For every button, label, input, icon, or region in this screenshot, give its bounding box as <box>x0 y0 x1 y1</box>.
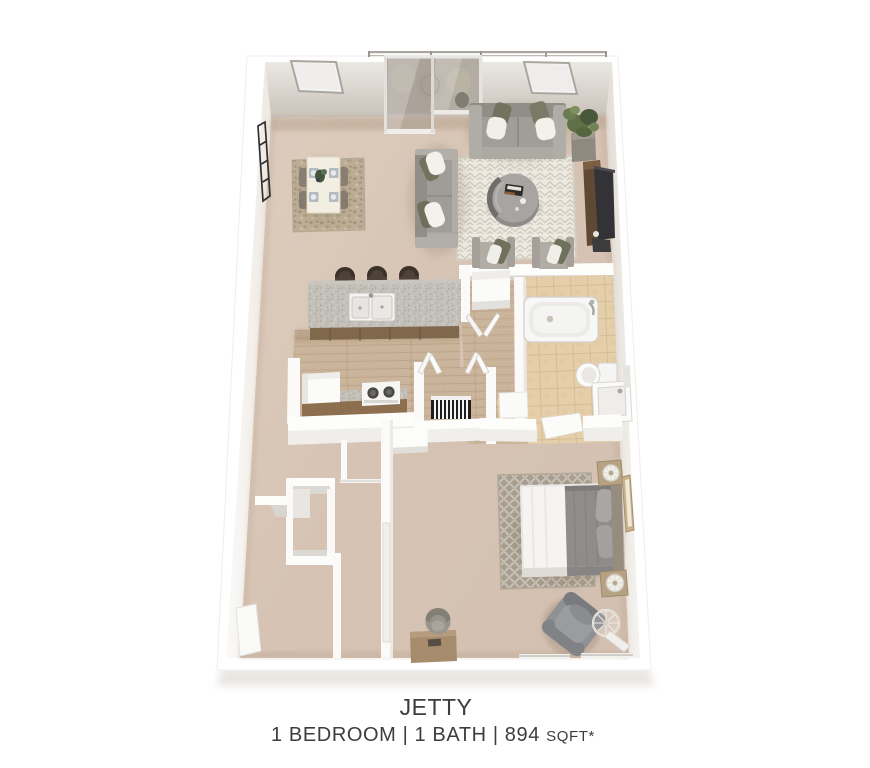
svg-text:1 BEDROOM | 1 BATH | 894 SQFT*: 1 BEDROOM | 1 BATH | 894 SQFT* <box>271 724 595 746</box>
svg-text:JETTY: JETTY <box>400 694 473 720</box>
